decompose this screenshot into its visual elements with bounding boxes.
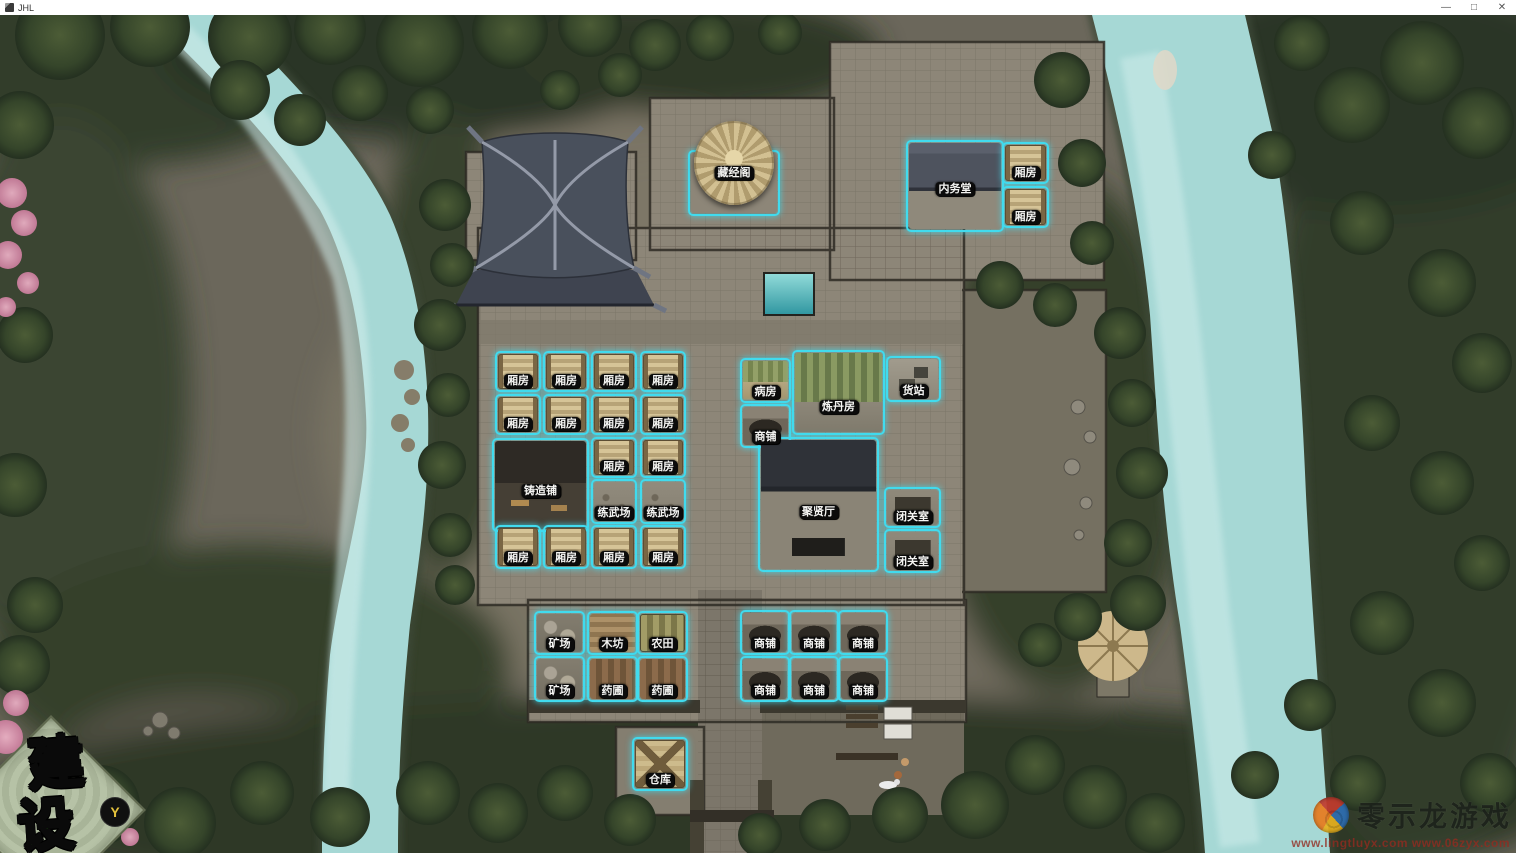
window-titlebar: JHL — □ ✕ <box>0 0 1516 15</box>
shop[interactable]: 商铺 <box>740 656 790 702</box>
herb-garden[interactable]: 药圃 <box>637 656 688 702</box>
wing-room[interactable]: 厢房 <box>591 437 637 478</box>
building-label: 厢房 <box>600 460 628 474</box>
warehouse[interactable]: 仓库 <box>632 737 688 791</box>
seclusion-room[interactable]: 闭关室 <box>884 529 941 573</box>
mine[interactable]: 矿场 <box>534 656 585 702</box>
wing-room[interactable]: 厢房 <box>1002 186 1049 228</box>
building-label: 厢房 <box>649 374 677 388</box>
wing-room[interactable]: 厢房 <box>495 525 541 569</box>
scripture-pavilion-sprite <box>691 153 777 213</box>
close-button[interactable]: ✕ <box>1488 0 1516 15</box>
building-label: 厢房 <box>600 417 628 431</box>
building-label: 厢房 <box>649 417 677 431</box>
minimize-button[interactable]: — <box>1432 0 1460 15</box>
wing-room[interactable]: 厢房 <box>543 525 589 569</box>
building-label: 药圃 <box>649 684 677 698</box>
wing-room[interactable]: 厢房 <box>543 351 589 392</box>
building-label: 铸造铺 <box>521 484 560 498</box>
wing-room[interactable]: 厢房 <box>495 351 541 392</box>
wing-room[interactable]: 厢房 <box>543 394 589 435</box>
building-label: 厢房 <box>552 551 580 565</box>
wing-room[interactable]: 厢房 <box>640 351 686 392</box>
wood-workshop[interactable]: 木坊 <box>587 611 638 655</box>
building-label: 矿场 <box>546 637 574 651</box>
building-label: 厢房 <box>552 417 580 431</box>
building-label: 厢房 <box>504 551 532 565</box>
shop[interactable]: 商铺 <box>838 656 888 702</box>
training-ground[interactable]: 练武场 <box>591 479 637 524</box>
building-label: 练武场 <box>644 506 683 520</box>
alchemy-room-sprite <box>795 353 882 432</box>
shop[interactable]: 商铺 <box>789 610 839 655</box>
buildings-layer: 藏经阁内务堂厢房厢房厢房厢房厢房厢房厢房厢房厢房厢房厢房厢房铸造铺练武场练武场厢… <box>0 15 1516 853</box>
watermark-brand: 零示龙游戏 <box>1357 795 1512 835</box>
window-title: JHL <box>18 3 34 13</box>
building-label: 厢房 <box>552 374 580 388</box>
gamepad-y-button[interactable]: Y <box>100 797 130 827</box>
building-label: 商铺 <box>751 684 779 698</box>
forge[interactable]: 铸造铺 <box>492 438 589 532</box>
building-label: 练武场 <box>595 506 634 520</box>
build-label-char-1: 建 <box>26 733 86 795</box>
wing-room[interactable]: 厢房 <box>640 525 686 569</box>
wing-room[interactable]: 厢房 <box>591 394 637 435</box>
building-label: 厢房 <box>600 374 628 388</box>
building-label: 闭关室 <box>893 555 932 569</box>
building-label: 炼丹房 <box>819 400 858 414</box>
building-label: 厢房 <box>1012 166 1040 180</box>
building-label: 农田 <box>649 637 677 651</box>
building-label: 商铺 <box>800 637 828 651</box>
building-label: 商铺 <box>751 637 779 651</box>
herb-garden[interactable]: 药圃 <box>587 656 638 702</box>
building-label: 藏经阁 <box>715 166 754 180</box>
building-label: 商铺 <box>752 430 780 444</box>
building-label: 商铺 <box>800 684 828 698</box>
building-label: 药圃 <box>599 684 627 698</box>
sick-room[interactable]: 病房 <box>740 358 791 403</box>
building-label: 商铺 <box>849 684 877 698</box>
building-label: 货站 <box>900 384 928 398</box>
wing-room[interactable]: 厢房 <box>640 437 686 478</box>
building-label: 聚贤厅 <box>799 505 838 519</box>
watermark: 零示龙游戏 www.lingtluyx.com www.06zyx.com <box>1291 795 1512 853</box>
shop[interactable]: 商铺 <box>740 610 790 655</box>
window-controls: — □ ✕ <box>1432 0 1516 15</box>
gamepad-y-key-label: Y <box>110 804 119 820</box>
building-label: 商铺 <box>849 637 877 651</box>
building-label: 病房 <box>752 385 780 399</box>
alchemy-room[interactable]: 炼丹房 <box>792 350 885 435</box>
game-map: 藏经阁内务堂厢房厢房厢房厢房厢房厢房厢房厢房厢房厢房厢房厢房铸造铺练武场练武场厢… <box>0 15 1516 853</box>
wing-room[interactable]: 厢房 <box>591 351 637 392</box>
scripture-pavilion[interactable]: 藏经阁 <box>688 150 780 216</box>
wing-room[interactable]: 厢房 <box>591 525 637 569</box>
app-icon <box>5 3 14 12</box>
building-label: 闭关室 <box>893 510 932 524</box>
build-label-char-2: 设 <box>16 795 76 853</box>
building-label: 仓库 <box>646 773 674 787</box>
building-label: 厢房 <box>504 417 532 431</box>
cargo-depot[interactable]: 货站 <box>886 356 941 402</box>
watermark-logo-icon <box>1313 797 1349 833</box>
building-label: 厢房 <box>649 551 677 565</box>
building-label: 厢房 <box>504 374 532 388</box>
building-label: 内务堂 <box>936 182 975 196</box>
watermark-urls: www.lingtluyx.com www.06zyx.com <box>1291 835 1512 853</box>
shop[interactable]: 商铺 <box>789 656 839 702</box>
maximize-button[interactable]: □ <box>1460 0 1488 15</box>
wing-room[interactable]: 厢房 <box>1002 142 1049 184</box>
shop[interactable]: 商铺 <box>838 610 888 655</box>
wing-room[interactable]: 厢房 <box>495 394 541 435</box>
building-label: 矿场 <box>546 684 574 698</box>
building-label: 木坊 <box>599 637 627 651</box>
build-mode-badge[interactable]: 建 设 Y <box>0 735 160 853</box>
mine[interactable]: 矿场 <box>534 611 585 655</box>
farmland[interactable]: 农田 <box>637 611 688 655</box>
training-ground[interactable]: 练武场 <box>640 479 686 524</box>
internal-affairs-hall[interactable]: 内务堂 <box>906 140 1004 232</box>
wing-room[interactable]: 厢房 <box>640 394 686 435</box>
gathering-hall[interactable]: 聚贤厅 <box>758 437 879 572</box>
seclusion-room[interactable]: 闭关室 <box>884 487 941 528</box>
building-label: 厢房 <box>600 551 628 565</box>
building-label: 厢房 <box>1012 210 1040 224</box>
building-label: 厢房 <box>649 460 677 474</box>
